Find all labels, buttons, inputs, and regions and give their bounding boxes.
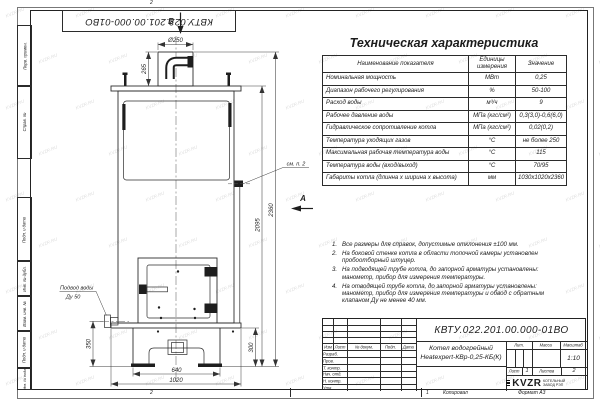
spec-param: Рабочее давление воды xyxy=(323,110,469,123)
spec-unit: МВт xyxy=(469,73,516,86)
sheet-label: Лист xyxy=(509,369,520,374)
sig-nachotd: Нач. отд. xyxy=(323,372,342,377)
mass-label: Масса xyxy=(540,343,552,348)
dim-300: 300 xyxy=(249,342,255,353)
spec-unit: м³/ч xyxy=(469,98,516,111)
spec-value: 1030х1020х2360 xyxy=(516,173,567,186)
spec-param: Максимальная рабочая температура воды xyxy=(323,148,469,161)
water-supply-label-2: Ду 50 xyxy=(65,295,81,301)
spec-value: 70/95 xyxy=(516,160,567,173)
spec-param: Температура воды (вход/выход) xyxy=(323,160,469,173)
col-izm: Изм xyxy=(324,344,332,349)
dim-1020: 1020 xyxy=(169,378,183,384)
door-bolt xyxy=(194,317,196,319)
dim-350: 350 xyxy=(87,338,93,349)
logo-word: KVZR xyxy=(512,378,541,389)
lifting-pin xyxy=(228,75,231,86)
door-handle-knob xyxy=(139,285,147,295)
flue-flange xyxy=(188,56,194,68)
spec-param: Габариты котла (длинна х ширина х высота… xyxy=(323,173,469,186)
spec-param: Номинальная мощность xyxy=(323,73,469,86)
dim-2095: 2095 xyxy=(256,218,262,233)
spec-table: Наименование показателя Единицы измерени… xyxy=(322,55,567,186)
spec-row: Гидравлическое сопротивление котлаМПа (к… xyxy=(323,123,567,136)
col-data: Дата xyxy=(403,344,414,349)
logo-bars-icon xyxy=(506,380,510,387)
col-list: Лист xyxy=(335,344,346,349)
dim-2360: 2360 xyxy=(269,203,275,218)
plate-bolt xyxy=(157,330,159,332)
door-hinge-top xyxy=(205,267,218,277)
spec-col-header: Значение xyxy=(516,56,567,73)
drawing-sheet: KVZR.RUKVZR.RUKVZR.RUKVZR.RUKVZR.RUKVZR.… xyxy=(0,0,600,400)
note-item: Все размеры для справок, допустимые откл… xyxy=(331,241,563,248)
door-hinge-bottom xyxy=(205,304,218,314)
lifting-pin xyxy=(123,73,128,76)
spec-value: 0,3(3,0)-0,6(6,0) xyxy=(516,110,567,123)
sheets-label: Листов xyxy=(539,369,554,374)
col-docnum: № докум. xyxy=(354,344,372,349)
spec-param: Диапазон рабочего регулирования xyxy=(323,85,469,98)
col-podp: Подп. xyxy=(385,344,396,349)
spec-value: 115 xyxy=(516,148,567,161)
spec-value: 0,25 xyxy=(516,73,567,86)
water-supply-label-1: Подвод воды xyxy=(60,286,93,292)
spec-unit: °С xyxy=(469,160,516,173)
spec-row: Рабочее давление водыМПа (кгс/см²)0,3(3,… xyxy=(323,110,567,123)
door-handle-bar xyxy=(147,287,168,292)
view-a-arrow xyxy=(291,206,301,212)
sig-nkontr: Н. контр. xyxy=(323,378,342,383)
view-a-label: А xyxy=(299,194,306,203)
spec-value: 9 xyxy=(516,98,567,111)
spec-col-header: Наименование показателя xyxy=(323,56,469,73)
spec-row: Расход водым³/ч9 xyxy=(323,98,567,111)
dim-d250: Ø250 xyxy=(167,38,183,44)
spec-col-header: Единицы измерения xyxy=(469,56,516,73)
spec-unit: мм xyxy=(469,173,516,186)
view-b-label: Б xyxy=(168,17,174,26)
product-name-line1: Котел водогрейный xyxy=(420,345,501,353)
spec-table-title: Техническая характеристика xyxy=(322,36,566,50)
spec-value: 50-100 xyxy=(516,85,567,98)
spec-unit: % xyxy=(469,85,516,98)
dim-265: 265 xyxy=(142,63,148,75)
spec-row: Температура воды (вход/выход)°С70/95 xyxy=(323,160,567,173)
sig-prov: Пров. xyxy=(323,358,334,363)
spec-param: Расход воды xyxy=(323,98,469,111)
door-bolt xyxy=(160,317,162,319)
panel-hinge-right xyxy=(228,103,231,127)
doc-number: КВТУ.022.201.00.000-01ВО xyxy=(434,325,568,336)
lifting-pin xyxy=(226,73,231,76)
sig-utv: Утв. xyxy=(323,385,332,390)
note-item: На подводящей трубе котла, до запорной а… xyxy=(331,266,563,281)
spec-row: Номинальная мощностьМВт0,25 xyxy=(323,73,567,86)
sheets-value: 2 xyxy=(572,368,575,374)
dim-640: 640 xyxy=(171,368,182,374)
foot-pad-left xyxy=(131,364,155,368)
spec-unit: °С xyxy=(469,135,516,148)
sig-razrab: Разраб. xyxy=(323,351,338,356)
product-name-line2: Heatexpert-КВр-0,25-КБ(К) xyxy=(420,354,501,362)
spec-param: Гидравлическое сопротивление котла xyxy=(323,123,469,136)
upper-panel xyxy=(124,101,230,180)
spec-unit: °С xyxy=(469,148,516,161)
lifting-pin xyxy=(124,75,127,86)
spec-row: Максимальная рабочая температура воды°С1… xyxy=(323,148,567,161)
title-block: Изм Лист № докум. Подп. Дата Разраб. Про… xyxy=(322,318,586,390)
flue-elbow-bore xyxy=(170,62,188,80)
pedestal-opening xyxy=(149,348,204,364)
notes-list: Все размеры для справок, допустимые откл… xyxy=(331,241,563,306)
door-bolt xyxy=(177,270,179,272)
note-item: На отводящей трубе котла, до запорной ар… xyxy=(331,283,563,305)
scale-value: 1:10 xyxy=(567,355,580,362)
see-note-2-label: см. п. 2 xyxy=(287,162,306,168)
lit-label: Лит. xyxy=(514,343,524,348)
spec-row: Габариты котла (длинна х ширина х высота… xyxy=(323,173,567,186)
ash-hatch-inner xyxy=(172,343,184,353)
panel-hinge-left xyxy=(122,104,125,130)
spec-row: Диапазон рабочего регулирования%50-100 xyxy=(323,85,567,98)
spec-value: 0,02(0,2) xyxy=(516,123,567,136)
spec-param: Температура уходящих газов xyxy=(323,135,469,148)
plate-bolt xyxy=(232,330,234,332)
spec-value: не более 250 xyxy=(516,135,567,148)
logo-caption: КОТЕЛЬНЫЙ ЗАВОД РЭП xyxy=(543,379,565,386)
logo-caption-line2: ЗАВОД РЭП xyxy=(543,383,563,387)
spec-row: Температура уходящих газов°Сне более 250 xyxy=(323,135,567,148)
scale-label: Масштаб xyxy=(564,343,583,348)
sig-tkontr: Т. контр. xyxy=(323,365,341,370)
kvzr-logo: KVZR КОТЕЛЬНЫЙ ЗАВОД РЭП xyxy=(506,375,587,391)
spec-unit: МПа (кгс/см²) xyxy=(469,123,516,136)
door-bolt xyxy=(158,306,160,308)
spec-unit: МПа (кгс/см²) xyxy=(469,110,516,123)
sheet-value: 1 xyxy=(525,368,528,374)
door-bolt xyxy=(193,308,195,310)
note-item: На боковой стенке котла в области топочн… xyxy=(331,250,563,265)
view-b-arrow xyxy=(178,26,184,34)
foot-pad-right xyxy=(198,364,222,368)
